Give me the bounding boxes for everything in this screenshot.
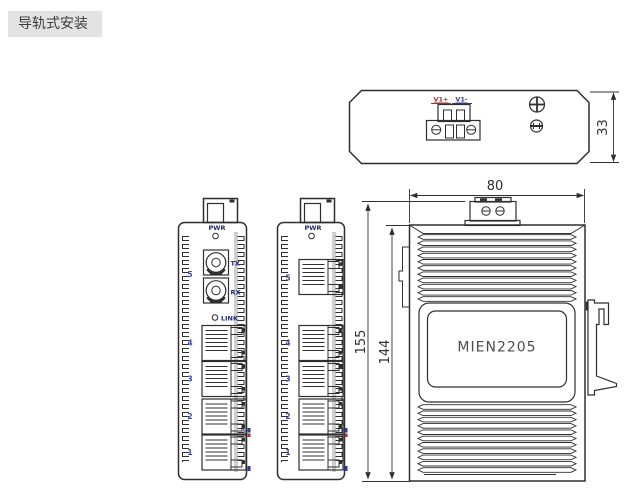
terminal-neg-label: V1-: [455, 96, 468, 104]
side-view: 80: [354, 179, 617, 482]
link-led-icon: [212, 315, 218, 321]
mount-screw-phillips-icon: [530, 97, 545, 112]
serration-left-2: [279, 236, 288, 462]
pwr-led-icon-2: [309, 233, 315, 239]
dim-33-label: 33: [596, 119, 611, 136]
dim-80-label: 80: [487, 179, 504, 194]
uplink-port-number: 5: [285, 274, 290, 283]
front-view-copper: PWR 5 4 3 2 1: [278, 199, 348, 480]
port-indicator-marks: [248, 428, 251, 471]
port-number-4: 4: [187, 339, 192, 348]
terminal-block-front-2: [301, 199, 335, 223]
front-view-fiber: PWR TX 5 RX LINK 4 3 2 1: [179, 199, 251, 480]
dim-depth-33: 33: [590, 92, 619, 163]
rx-label: RX: [231, 289, 241, 297]
port-number-2: 2: [187, 412, 192, 421]
heatsink-ribs-bottom: [418, 405, 576, 475]
dim-height-144: 144: [378, 226, 409, 480]
terminal-block-front: [204, 199, 238, 223]
technical-drawing: V1+ V1-: [0, 0, 628, 501]
dim-144-label: 144: [378, 340, 393, 365]
top-view-outline: [350, 91, 590, 164]
port-number-3: 3: [187, 375, 192, 384]
side-left-tab: [399, 247, 410, 307]
pwr-label-2: PWR: [305, 224, 322, 232]
port-number-3b: 3: [285, 375, 290, 384]
port-number-4b: 4: [285, 339, 290, 348]
model-label: MIEN2205: [457, 340, 536, 356]
port-number-2b: 2: [285, 412, 290, 421]
top-view: V1+ V1-: [350, 91, 620, 164]
heatsink-ribs-top: [418, 235, 576, 302]
din-rail-clip: [586, 300, 617, 395]
link-label: LINK: [221, 315, 239, 323]
port-number-1b: 1: [285, 448, 290, 457]
pwr-led-icon: [213, 233, 219, 239]
terminal-block-side: [465, 198, 520, 226]
terminal-pos-label: V1+: [434, 96, 449, 104]
tx-label: TX: [231, 260, 240, 268]
mount-screw-slotted-icon: [531, 120, 543, 132]
fiber-port-number: 5: [187, 270, 192, 279]
model-label-panel: MIEN2205: [419, 303, 575, 402]
fiber-port-rx-icon: [204, 278, 229, 304]
port-number-1: 1: [187, 448, 192, 457]
dim-155-label: 155: [354, 330, 369, 355]
diagram-canvas: 导轨式安装: [0, 0, 628, 501]
fiber-port-tx-icon: [204, 250, 229, 276]
pwr-label: PWR: [209, 224, 226, 232]
power-terminal-top: V1+ V1-: [427, 96, 481, 141]
